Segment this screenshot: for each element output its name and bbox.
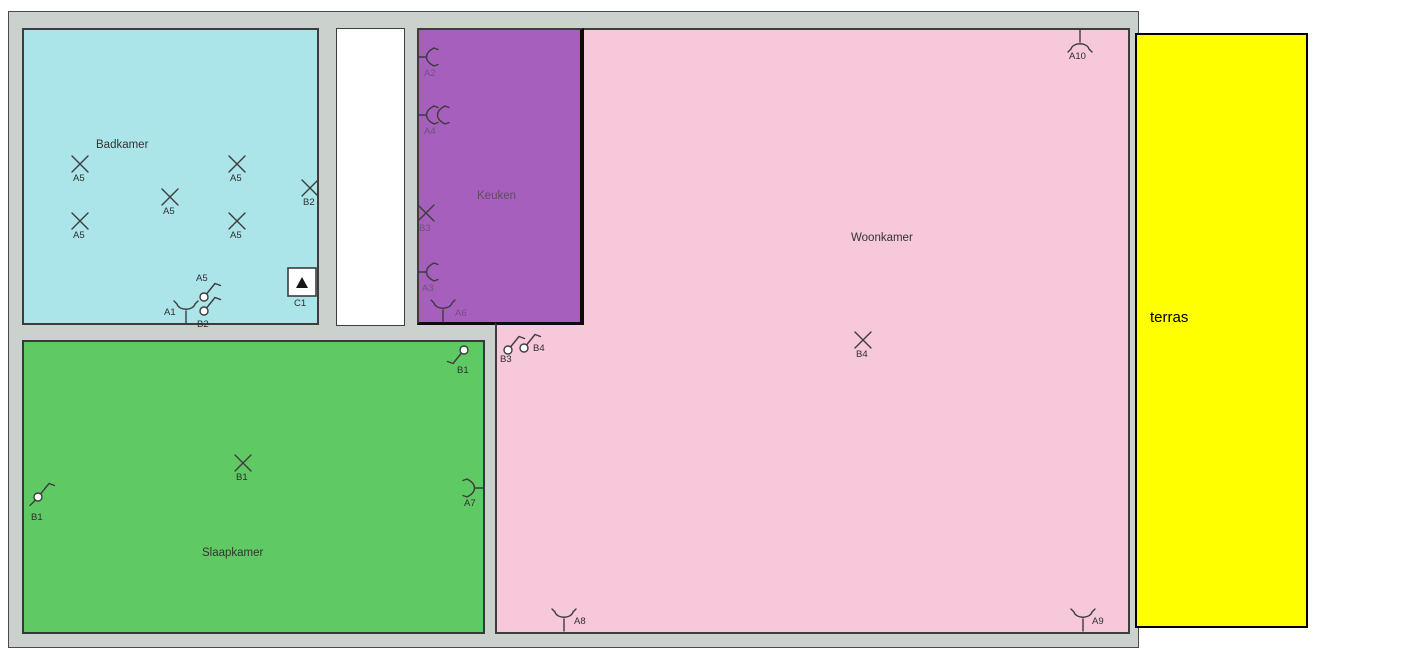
room-corridor (336, 28, 405, 326)
room-terras (1135, 33, 1308, 628)
room-label-keuken: Keuken (477, 190, 516, 202)
room-label-badkamer: Badkamer (96, 139, 148, 151)
room-woonkamer-extension (495, 322, 584, 634)
floor-plan: Badkamer Keuken Woonkamer Slaapkamer ter… (0, 0, 1401, 663)
room-keuken (417, 28, 584, 325)
room-woonkamer (584, 28, 1130, 634)
room-label-woonkamer: Woonkamer (851, 232, 913, 244)
room-label-slaapkamer: Slaapkamer (202, 547, 263, 559)
room-label-terras: terras (1150, 309, 1188, 326)
room-badkamer (22, 28, 319, 325)
room-slaapkamer (22, 340, 485, 634)
